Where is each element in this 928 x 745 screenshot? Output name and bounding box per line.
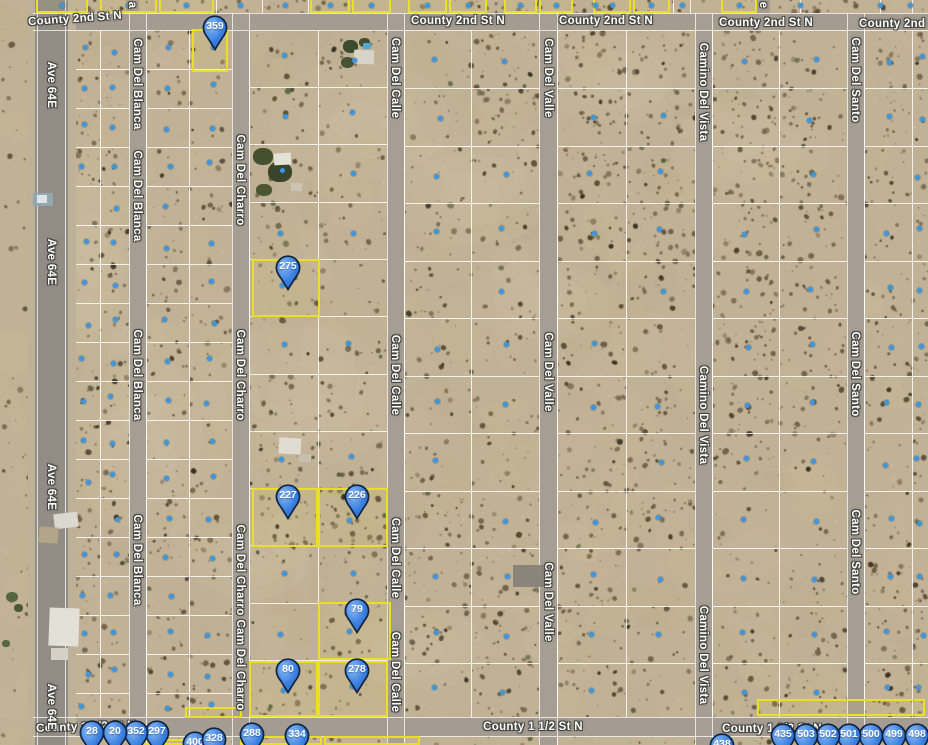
parcel-dot	[661, 113, 666, 118]
map-pin-435[interactable]: 435	[770, 723, 796, 745]
pin-number: 438	[709, 738, 735, 745]
road-label: Cam Del Charro	[234, 619, 246, 710]
road-edge	[249, 13, 250, 745]
pin-number: 503	[793, 728, 819, 740]
building	[37, 195, 47, 203]
parcel-dot	[591, 572, 596, 577]
parcel-line	[779, 30, 780, 717]
road-edge	[864, 13, 865, 745]
parcel-dot	[351, 231, 356, 236]
road-label: County 2nd St N	[719, 17, 813, 29]
building	[274, 153, 292, 166]
parcel-dot	[655, 404, 660, 409]
parcel-dot	[920, 117, 925, 122]
road-edge	[404, 13, 405, 745]
road-label: Cam Del Valle	[542, 562, 554, 641]
pin-number: 288	[239, 727, 265, 739]
parcel-dot	[878, 3, 883, 8]
parcel-dot	[79, 704, 84, 709]
pin-number: 359	[202, 20, 228, 32]
highlighted-parcel[interactable]	[324, 736, 420, 745]
parcel-dot	[742, 232, 747, 237]
parcel-dot	[83, 45, 88, 50]
road-label: Cam Del Santo	[849, 509, 861, 594]
road-label: Cam Del Calle	[389, 38, 401, 119]
parcel-dot	[887, 114, 892, 119]
road-label: Camino Del Vista	[697, 606, 709, 705]
road-label: Camino Del Vista	[697, 43, 709, 142]
road-label: Cam Del Santo	[849, 331, 861, 416]
parcel-dot	[810, 342, 815, 347]
parcel-dot	[211, 474, 216, 479]
parcel-dot	[369, 3, 374, 8]
parcel-dot	[113, 283, 118, 288]
parcel-dot	[438, 116, 443, 121]
parcel-dot	[502, 59, 507, 64]
parcel-dot	[164, 246, 169, 251]
tree-canopy	[14, 604, 23, 612]
parcel-dot	[110, 441, 115, 446]
road-edge	[847, 13, 848, 745]
map-pin-438[interactable]: 438	[709, 733, 735, 745]
map-pin-278[interactable]: 278	[344, 658, 370, 694]
parcel-dot	[917, 521, 922, 526]
parcel-line	[71, 615, 232, 616]
road-label: County 1 1/2 St N	[483, 721, 583, 733]
road-label: Cam Del Blanca	[131, 38, 143, 129]
tree-canopy	[256, 184, 272, 196]
parcel-dot	[814, 690, 819, 695]
parcel-line	[71, 147, 232, 148]
road-label: Ave 64E	[45, 464, 57, 510]
road-label: Cam Del Calle	[389, 632, 401, 713]
road-label: Ave 64E	[45, 62, 57, 108]
parcel-dot	[165, 86, 170, 91]
parcel-dot	[283, 3, 288, 8]
parcel-dot	[504, 634, 509, 639]
parcel-dot	[658, 169, 663, 174]
road-edge	[232, 13, 233, 745]
parcel-line	[71, 264, 232, 265]
parcel-dot	[500, 690, 505, 695]
parcel-dot	[889, 516, 894, 521]
parcel-dot	[658, 577, 663, 582]
parcel-dot	[587, 171, 592, 176]
parcel-dot	[884, 400, 889, 405]
building	[48, 607, 79, 646]
road-label-fragment: e	[757, 2, 769, 9]
parcel-dot	[798, 3, 803, 8]
map-pin-28[interactable]: 28	[79, 720, 105, 745]
parcel-dot	[814, 519, 819, 524]
parcel-line	[673, 0, 674, 13]
parcel-dot	[209, 279, 214, 284]
parcel-dot	[212, 321, 217, 326]
parcel-dot	[165, 706, 170, 711]
road-label: Cam Del Blanca	[131, 150, 143, 241]
parcel-dot	[610, 3, 615, 8]
parcel-dot	[112, 50, 117, 55]
parcel-line	[71, 693, 232, 694]
parcel-line	[912, 30, 913, 717]
road-edge	[695, 13, 696, 745]
map-pin-275[interactable]: 275	[275, 255, 301, 291]
parcel-dot	[504, 172, 509, 177]
road-edge	[37, 0, 38, 745]
parcel-dot	[435, 347, 440, 352]
parcel-dot	[82, 552, 87, 557]
road-label: Cam Del Blanca	[131, 514, 143, 605]
parcel-dot	[349, 454, 354, 459]
road-label: Cam Del Blanca	[131, 329, 143, 420]
road-label: Cam Del Charro	[234, 524, 246, 615]
parcel-dot	[746, 345, 751, 350]
road-label: Cam Del Santo	[849, 37, 861, 122]
road-label: Cam Del Calle	[389, 335, 401, 416]
road-label: Camino Del Vista	[697, 366, 709, 465]
parcel-line	[262, 0, 263, 13]
parcel-line	[71, 420, 232, 421]
parcel-line	[626, 30, 627, 717]
map-pin-359[interactable]: 359	[202, 15, 228, 51]
road-label: Cam Del Valle	[542, 332, 554, 411]
parcel-dot	[238, 3, 243, 8]
road-label: Cam Del Calle	[389, 518, 401, 599]
parcel-dot	[466, 3, 471, 8]
parcel-line	[71, 225, 232, 226]
road-label: County 2nd St N	[411, 15, 505, 27]
road-edge	[129, 13, 130, 745]
parcel-line	[71, 537, 232, 538]
parcel-dot	[163, 555, 168, 560]
building	[299, 454, 311, 462]
road-edge	[146, 13, 147, 745]
parcel-dot	[110, 472, 115, 477]
parcel-dot	[81, 438, 86, 443]
parcel-dot	[434, 174, 439, 179]
road-edge	[557, 13, 558, 745]
pin-number: 498	[904, 728, 928, 740]
pin-number: 20	[102, 725, 128, 737]
parcel-dot	[503, 519, 508, 524]
parcel-dot	[115, 517, 120, 522]
map-pin-498[interactable]: 498	[904, 723, 928, 745]
road-label: Cam Del Valle	[542, 38, 554, 117]
parcel-dot	[814, 57, 819, 62]
road-label-fragment: a	[126, 2, 138, 9]
pin-number: 28	[79, 725, 105, 737]
parcel-line	[71, 498, 232, 499]
parcel-dot	[209, 702, 214, 707]
pin-number: 226	[344, 489, 370, 501]
parcel-line	[71, 108, 232, 109]
parcel-dot	[680, 3, 685, 8]
parcel-dot	[649, 3, 654, 8]
map-pin-328[interactable]: 328	[201, 727, 227, 745]
parcel-line	[189, 30, 190, 717]
parcel-dot	[110, 85, 115, 90]
road-edge	[33, 717, 928, 718]
parcel-dot	[740, 630, 745, 635]
map-pin-226[interactable]: 226	[344, 484, 370, 520]
road-label: Cam Del Charro	[234, 134, 246, 225]
parcel-dot	[915, 175, 920, 180]
tree-canopy	[253, 148, 273, 165]
road-label: Ave 64E	[45, 239, 57, 285]
map-pin-334[interactable]: 334	[284, 723, 310, 745]
parcel-dot	[168, 672, 173, 677]
parcel-dot	[887, 60, 892, 65]
parcel-line	[71, 303, 232, 304]
building	[279, 437, 302, 454]
parcel-dot	[888, 574, 893, 579]
map-pin-227[interactable]: 227	[275, 484, 301, 520]
map-pin-79[interactable]: 79	[344, 598, 370, 634]
parcel-dot	[60, 3, 65, 8]
parcel-dot	[504, 342, 509, 347]
parcel-dot	[554, 3, 559, 8]
road-label: County 2nd St N	[559, 15, 653, 27]
parcel-dot	[86, 480, 91, 485]
parcel-dot	[111, 630, 116, 635]
map-pin-288[interactable]: 288	[239, 722, 265, 745]
parcel-dot	[657, 227, 662, 232]
parcel-dot	[593, 3, 598, 8]
tree-canopy	[363, 43, 371, 49]
road-edge	[712, 13, 713, 745]
pin-number: 79	[344, 603, 370, 615]
parcel-dot	[885, 685, 890, 690]
parcel-line	[690, 0, 691, 13]
pin-number: 80	[275, 663, 301, 675]
parcel-dot	[745, 403, 750, 408]
pin-number: 278	[344, 663, 370, 675]
tree-canopy	[6, 592, 18, 602]
highlighted-parcel[interactable]	[757, 699, 925, 716]
parcel-dot	[82, 122, 87, 127]
building	[291, 183, 302, 191]
pin-number: 275	[275, 260, 301, 272]
building	[51, 648, 68, 660]
parcel-dot	[518, 3, 523, 8]
parcel-dot	[168, 164, 173, 169]
parcel-line	[100, 30, 101, 717]
parcel-dot	[920, 54, 925, 59]
map-canvas[interactable]: County 2nd St NCounty 2nd St NCounty 2nd…	[0, 0, 928, 745]
parcel-dot	[593, 520, 598, 525]
pin-number: 435	[770, 728, 796, 740]
parcel-dot	[814, 227, 819, 232]
parcel-line	[71, 186, 232, 187]
parcel-dot	[184, 3, 189, 8]
pin-number: 227	[275, 489, 301, 501]
parcel-dot	[433, 458, 438, 463]
parcel-dot	[425, 3, 430, 8]
parcel-dot	[205, 674, 210, 679]
tree-canopy	[2, 640, 10, 647]
parcel-dot	[737, 3, 742, 8]
parcel-line	[471, 30, 472, 717]
pin-number: 328	[201, 732, 227, 744]
parcel-dot	[165, 359, 170, 364]
parcel-dot	[884, 231, 889, 236]
pin-number: 334	[284, 728, 310, 740]
building	[354, 50, 374, 65]
parcel-line	[71, 381, 232, 382]
parcel-dot	[279, 457, 284, 462]
parcel-line	[71, 576, 232, 577]
parcel-dot	[908, 3, 913, 8]
road-label: County 2nd St N	[859, 18, 928, 30]
map-pin-20[interactable]: 20	[102, 720, 128, 745]
parcel-dot	[328, 3, 333, 8]
building	[513, 565, 544, 587]
parcel-line	[71, 342, 232, 343]
parcel-dot	[86, 672, 91, 677]
parcel-dot	[659, 460, 664, 465]
parcel-line	[71, 654, 232, 655]
parcel-dot	[351, 171, 356, 176]
road-label: Ave 64E	[45, 684, 57, 730]
parcel-dot	[351, 571, 356, 576]
map-pin-503[interactable]: 503	[793, 723, 819, 745]
parcel-dot	[656, 632, 661, 637]
road-edge	[539, 13, 540, 745]
parcel-dot	[744, 456, 749, 461]
map-pin-80[interactable]: 80	[275, 658, 301, 694]
parcel-dot	[82, 86, 87, 91]
parcel-line	[71, 459, 232, 460]
parcel-line	[216, 0, 217, 13]
parcel-dot	[210, 556, 215, 561]
parcel-dot	[81, 399, 86, 404]
building	[38, 526, 58, 543]
parcel-dot	[592, 341, 597, 346]
parcel-dot	[204, 401, 209, 406]
road-edge	[33, 30, 928, 31]
road-label: Cam Del Charro	[234, 329, 246, 420]
parcel-dot	[169, 594, 174, 599]
